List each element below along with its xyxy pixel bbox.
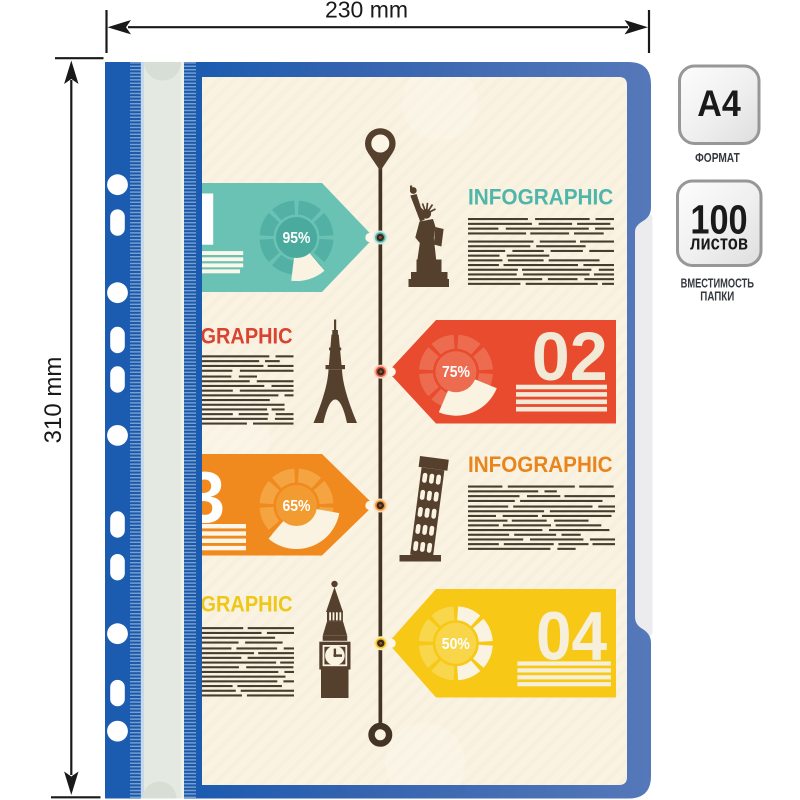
svg-text:95%: 95% — [283, 230, 311, 247]
svg-text:A4: A4 — [697, 83, 741, 124]
svg-text:INFOGRAPHIC: INFOGRAPHIC — [468, 452, 613, 477]
svg-text:50%: 50% — [442, 636, 470, 653]
svg-text:65%: 65% — [283, 498, 311, 515]
svg-text:GRAPHIC: GRAPHIC — [201, 324, 293, 349]
svg-text:GRAPHIC: GRAPHIC — [201, 592, 293, 617]
svg-text:310 mm: 310 mm — [40, 357, 67, 444]
svg-text:листов: листов — [690, 232, 748, 254]
svg-text:INFOGRAPHIC: INFOGRAPHIC — [468, 185, 613, 210]
svg-text:230 mm: 230 mm — [325, 0, 408, 23]
svg-text:75%: 75% — [442, 364, 470, 381]
svg-text:02: 02 — [532, 318, 608, 395]
svg-text:ФОРМАТ: ФОРМАТ — [695, 151, 740, 165]
svg-text:ПАПКИ: ПАПКИ — [700, 289, 734, 303]
